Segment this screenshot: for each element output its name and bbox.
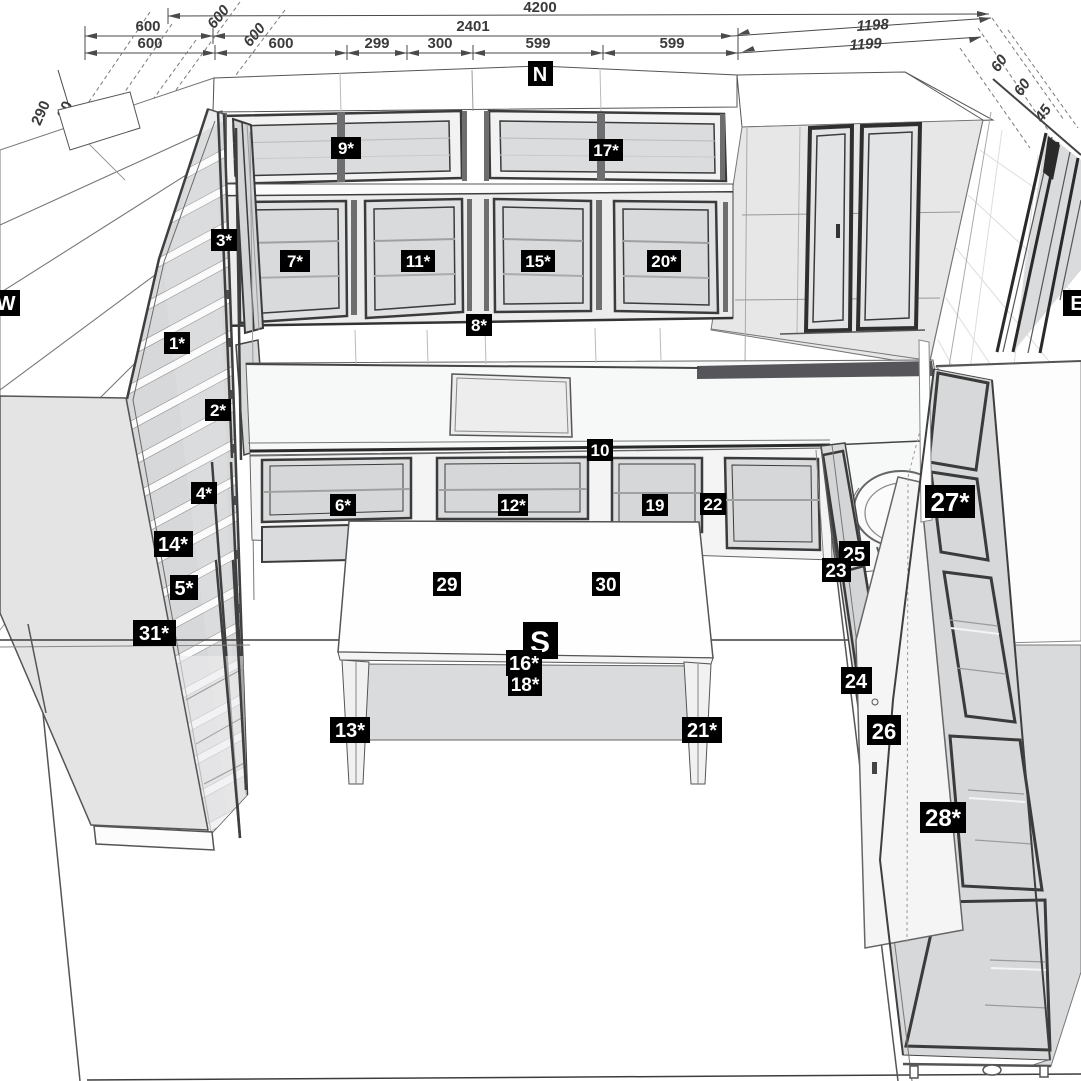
svg-text:2401: 2401 — [456, 18, 489, 35]
svg-text:2*: 2* — [210, 401, 226, 420]
svg-text:24: 24 — [845, 671, 868, 693]
svg-text:5*: 5* — [175, 578, 194, 600]
svg-text:13*: 13* — [335, 720, 365, 742]
svg-text:12*: 12* — [500, 496, 526, 515]
svg-text:21*: 21* — [687, 720, 717, 742]
svg-text:600: 600 — [268, 35, 293, 52]
svg-text:18*: 18* — [511, 675, 540, 696]
svg-text:300: 300 — [427, 35, 452, 52]
svg-text:29: 29 — [436, 575, 457, 596]
svg-text:31*: 31* — [139, 623, 169, 645]
svg-text:1199: 1199 — [849, 35, 883, 54]
svg-text:23: 23 — [825, 561, 846, 582]
svg-text:1198: 1198 — [856, 16, 890, 35]
svg-text:15*: 15* — [525, 252, 551, 271]
svg-text:9*: 9* — [338, 139, 354, 158]
svg-text:20*: 20* — [651, 252, 677, 271]
svg-text:7*: 7* — [287, 252, 303, 271]
svg-text:6*: 6* — [335, 496, 351, 515]
svg-text:11*: 11* — [406, 252, 431, 271]
svg-text:30: 30 — [595, 575, 616, 596]
svg-text:10: 10 — [591, 441, 610, 460]
svg-text:600: 600 — [137, 35, 162, 52]
svg-text:28*: 28* — [925, 805, 962, 832]
svg-text:N: N — [533, 64, 547, 86]
svg-text:4*: 4* — [196, 484, 212, 503]
svg-text:14*: 14* — [158, 534, 188, 556]
svg-text:3*: 3* — [216, 231, 232, 250]
svg-text:17*: 17* — [593, 141, 619, 160]
svg-text:4200: 4200 — [523, 0, 556, 16]
svg-text:19: 19 — [646, 496, 665, 515]
svg-text:299: 299 — [364, 35, 389, 52]
svg-text:16*: 16* — [509, 653, 539, 675]
svg-text:8*: 8* — [471, 316, 487, 335]
svg-text:599: 599 — [525, 35, 550, 52]
svg-text:E: E — [1070, 293, 1081, 315]
svg-text:26: 26 — [872, 719, 896, 744]
svg-text:27*: 27* — [930, 487, 970, 517]
svg-text:600: 600 — [135, 18, 160, 35]
svg-text:1*: 1* — [169, 334, 185, 353]
svg-text:599: 599 — [659, 35, 684, 52]
svg-text:22: 22 — [704, 495, 723, 514]
svg-text:W: W — [0, 293, 16, 315]
